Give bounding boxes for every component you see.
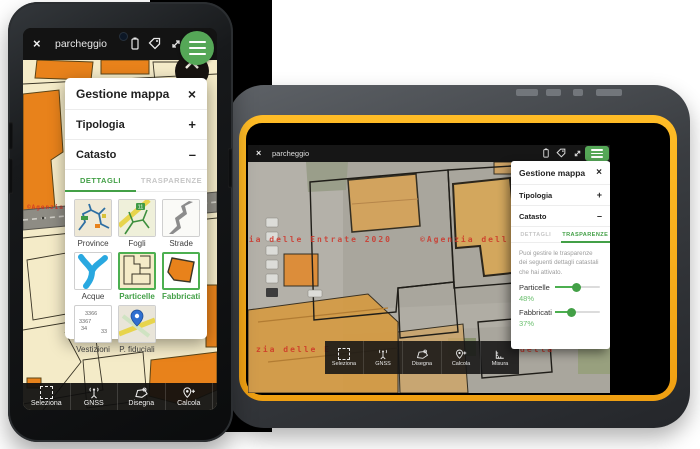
fogli-thumb: 11	[119, 200, 155, 236]
toolbar-disegna[interactable]: Disegna	[403, 341, 442, 374]
map-management-panel: Gestione mappa × Tipologia + Catasto – D…	[65, 78, 207, 339]
layer-vestizioni[interactable]: 3366 3367 34 33 Vestizioni	[74, 305, 112, 354]
tablet-device: zia delle Entrate 2020 ©Agenzia dell zia…	[228, 85, 690, 428]
map-watermark: zia delle Entrate 2020	[248, 235, 392, 244]
section-tipologia[interactable]: Tipologia +	[511, 184, 610, 205]
layer-acque[interactable]: Acque	[74, 252, 112, 301]
layer-p-fiduciali[interactable]: P. fiduciali	[118, 305, 156, 354]
map-watermark: zia delle E	[256, 345, 331, 354]
search-query-label: parcheggio	[55, 38, 107, 50]
acque-thumb	[75, 253, 111, 289]
battery-icon	[131, 37, 139, 50]
toolbar-seleziona[interactable]: Seleziona	[325, 341, 364, 374]
toolbar-misura[interactable]: Misura	[213, 383, 217, 410]
particelle-thumb	[120, 254, 154, 288]
tag-icon[interactable]	[148, 37, 161, 50]
draw-polygon-icon	[134, 387, 149, 399]
pin-plus-icon	[455, 349, 467, 360]
slider-group-particelle: Particelle 48%	[511, 280, 610, 303]
tab-dettagli[interactable]: DETTAGLI	[511, 227, 561, 242]
toolbar-calcola[interactable]: Calcola	[442, 341, 481, 374]
battery-icon	[543, 148, 549, 158]
measure-icon	[494, 349, 506, 360]
phone-toolbar: Seleziona GNSS Disegna Calcola Misura	[23, 383, 217, 410]
tablet-volume-button	[546, 89, 561, 96]
expand-plus-icon: +	[597, 190, 602, 200]
gnss-antenna-icon	[377, 349, 389, 360]
layer-tile-grid: Province 11 Fogli Strade Acque Particell…	[65, 192, 207, 362]
toolbar-calcola[interactable]: Calcola	[166, 383, 214, 410]
panel-title: Gestione mappa	[76, 87, 169, 101]
section-catasto[interactable]: Catasto –	[65, 139, 207, 169]
close-icon[interactable]: ×	[33, 37, 41, 51]
panel-title: Gestione mappa	[519, 168, 585, 178]
tab-trasparenze[interactable]: TRASPARENZE	[136, 170, 207, 191]
expand-icon[interactable]	[573, 149, 582, 158]
phone-volume-button	[9, 122, 13, 150]
close-icon[interactable]: ×	[256, 148, 261, 159]
toolbar-gnss[interactable]: GNSS	[71, 383, 119, 410]
toolbar-gnss[interactable]: GNSS	[364, 341, 403, 374]
transparency-description: Puoi gestire le trasparenze dei seguenti…	[511, 243, 610, 280]
fabbricati-thumb	[164, 254, 198, 288]
svg-text:11: 11	[138, 205, 144, 211]
fiduciali-thumb	[119, 306, 155, 342]
tag-icon[interactable]	[556, 148, 566, 158]
fabbricati-value: 37%	[519, 319, 602, 328]
layer-strade[interactable]: Strade	[162, 199, 200, 248]
tablet-toolbar: Seleziona GNSS Disegna Calcola Misura	[325, 341, 519, 374]
tablet-port-cover	[596, 89, 622, 96]
tab-trasparenze[interactable]: TRASPARENZE	[561, 227, 611, 242]
tablet-power-button	[516, 89, 538, 96]
phone-screen: ©Agenzia de × parcheggio Gestione mappa …	[23, 28, 217, 410]
tablet-app-screen: zia delle Entrate 2020 ©Agenzia dell zia…	[248, 145, 610, 393]
slider-group-fabbricati: Fabbricati 37%	[511, 305, 610, 328]
toolbar-seleziona[interactable]: Seleziona	[23, 383, 71, 410]
slider-thumb[interactable]	[572, 283, 581, 292]
province-thumb	[75, 200, 111, 236]
phone-power-button	[228, 148, 232, 188]
close-icon[interactable]: ×	[188, 88, 196, 100]
map-watermark: ©Agenzia dell	[420, 235, 509, 244]
search-query-label: parcheggio	[272, 149, 309, 158]
menu-button[interactable]	[585, 146, 609, 161]
layer-fogli[interactable]: 11 Fogli	[118, 199, 156, 248]
particelle-value: 48%	[519, 294, 602, 303]
strade-thumb	[163, 200, 199, 236]
section-tipologia[interactable]: Tipologia +	[65, 109, 207, 139]
collapse-minus-icon: –	[597, 211, 602, 221]
close-icon[interactable]: ×	[596, 169, 602, 177]
toolbar-disegna[interactable]: Disegna	[118, 383, 166, 410]
tablet-topbar: × parcheggio	[248, 145, 610, 162]
pin-plus-icon	[182, 387, 196, 399]
menu-button[interactable]	[180, 31, 214, 65]
slider-thumb[interactable]	[567, 308, 576, 317]
map-management-panel: Gestione mappa × Tipologia + Catasto – D…	[511, 161, 610, 349]
select-area-icon	[338, 348, 350, 360]
gnss-antenna-icon	[87, 387, 101, 399]
layer-fabbricati[interactable]: Fabbricati	[162, 252, 200, 301]
collapse-minus-icon: –	[189, 147, 196, 162]
phone-device: ©Agenzia de × parcheggio Gestione mappa …	[8, 2, 233, 442]
phone-side-button	[9, 158, 13, 194]
tablet-button	[573, 89, 583, 96]
section-catasto[interactable]: Catasto –	[511, 205, 610, 226]
particelle-slider[interactable]	[555, 286, 600, 288]
select-area-icon	[40, 386, 53, 399]
expand-plus-icon: +	[188, 117, 196, 132]
layer-particelle[interactable]: Particelle	[118, 252, 156, 301]
tab-dettagli[interactable]: DETTAGLI	[65, 170, 136, 191]
draw-polygon-icon	[416, 349, 429, 360]
front-camera	[119, 32, 128, 41]
fabbricati-slider[interactable]	[555, 311, 600, 313]
layer-province[interactable]: Province	[74, 199, 112, 248]
